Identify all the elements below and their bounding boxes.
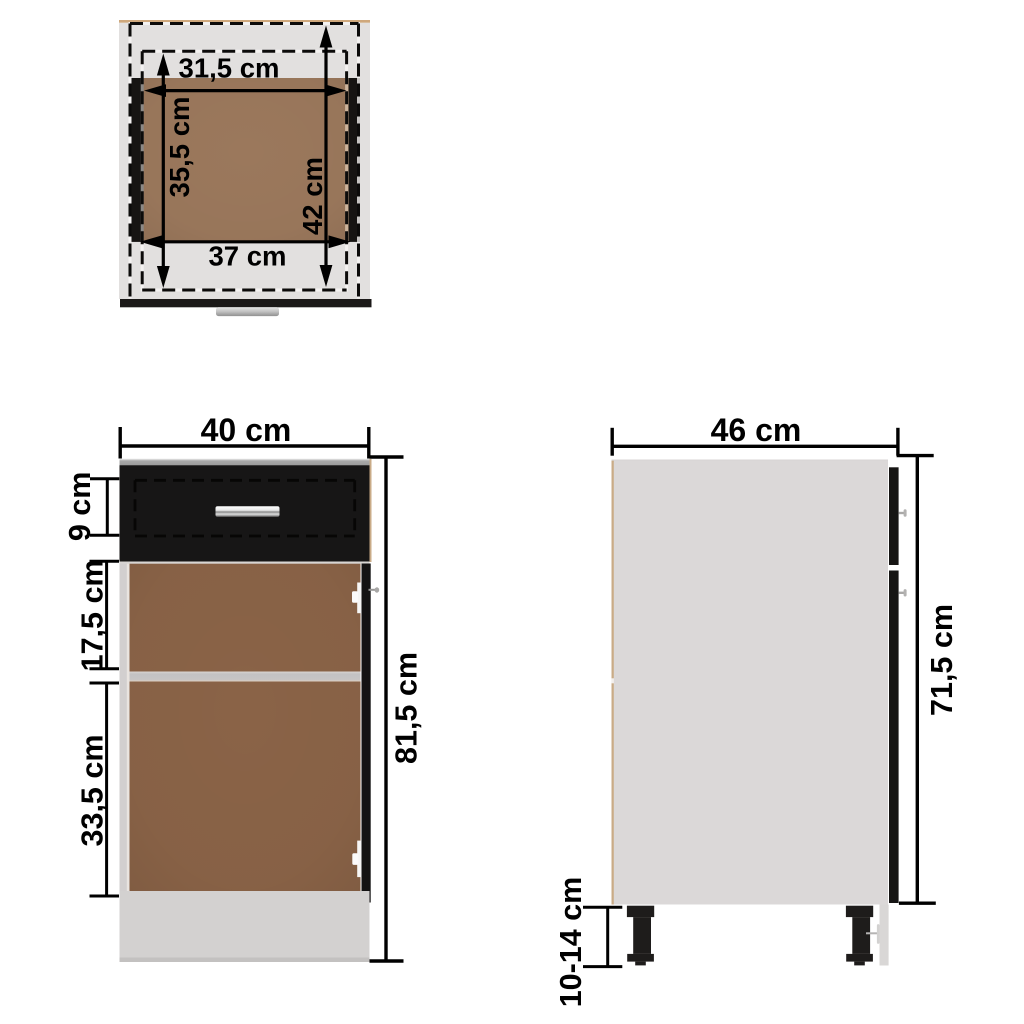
svg-text:9 cm: 9 cm: [63, 472, 97, 542]
svg-text:42 cm: 42 cm: [297, 157, 328, 235]
svg-text:35,5 cm: 35,5 cm: [164, 97, 195, 198]
svg-text:71,5 cm: 71,5 cm: [925, 604, 959, 716]
svg-text:37 cm: 37 cm: [209, 240, 287, 271]
svg-text:81,5 cm: 81,5 cm: [390, 652, 424, 764]
svg-text:46 cm: 46 cm: [711, 412, 802, 448]
svg-text:17,5 cm: 17,5 cm: [76, 559, 110, 671]
svg-text:40 cm: 40 cm: [201, 412, 292, 448]
svg-text:31,5 cm: 31,5 cm: [179, 53, 280, 84]
svg-text:33,5 cm: 33,5 cm: [76, 735, 110, 847]
svg-text:10-14 cm: 10-14 cm: [554, 877, 588, 1008]
